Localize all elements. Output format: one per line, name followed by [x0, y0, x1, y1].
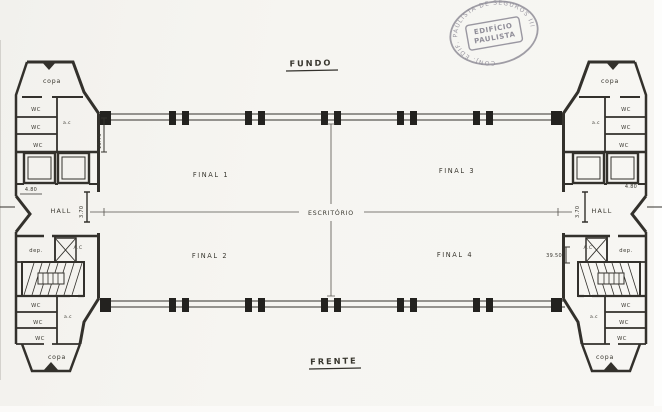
room-label-dep-left: dep.	[29, 248, 42, 254]
label-final-3: FINAL 3	[439, 167, 475, 175]
dim-elevator-left: 4.80	[25, 187, 37, 193]
dim-hall-left: 3.70	[79, 206, 85, 218]
room-label-wc: WC	[617, 336, 627, 342]
label-frente: FRENTE	[310, 355, 358, 366]
office-labels: FINAL 1 FINAL 3 FINAL 2 FINAL 4 ESCRITÓR…	[192, 167, 475, 260]
dimension-marks	[20, 118, 588, 263]
room-label-wc: WC	[621, 303, 631, 309]
room-label-hall-right: HALL	[591, 207, 612, 215]
label-final-4: FINAL 4	[437, 251, 473, 259]
left-wing-labels: copa WC WC WC a.c HALL dep. A.C WC WC WC…	[29, 78, 82, 361]
room-label-ac-shaft-right: A.C	[584, 245, 593, 251]
room-label-copa-bottom-left: copa	[48, 354, 66, 361]
right-wing-labels: copa WC WC WC a.c HALL dep. A.C WC WC WC…	[584, 78, 633, 361]
room-label-ac: a.c	[590, 315, 598, 320]
room-label-wc: WC	[621, 125, 631, 131]
room-label-wc: WC	[33, 143, 43, 149]
room-label-copa-bottom-right: copa	[596, 354, 614, 361]
dim-hall-right: 3.70	[575, 206, 581, 218]
room-label-copa-top-left: copa	[43, 78, 61, 85]
room-label-wc: WC	[31, 303, 41, 309]
label-fundo: FUNDO	[289, 57, 332, 68]
room-label-copa-top-right: copa	[601, 78, 619, 85]
room-label-wc: WC	[31, 125, 41, 131]
room-label-ac-shaft-left: A.C	[74, 245, 83, 251]
room-label-wc: WC	[621, 107, 631, 113]
scanned-floor-plan: 15.75 4.80 3.70 4.80 3.70 39.50 copa WC …	[0, 0, 662, 412]
dim-bay-height: 15.75	[97, 133, 103, 149]
room-label-ac: a.c	[63, 121, 71, 126]
dim-elevator-right: 4.80	[625, 184, 637, 190]
room-label-wc: WC	[619, 143, 629, 149]
room-label-wc: WC	[33, 320, 43, 326]
label-final-2: FINAL 2	[192, 252, 228, 260]
room-label-hall-left: HALL	[50, 207, 71, 215]
room-label-dep-right: dep.	[619, 248, 632, 254]
room-label-ac: a.c	[64, 315, 72, 320]
room-label-wc: WC	[31, 107, 41, 113]
label-escritorio: ESCRITÓRIO	[308, 208, 354, 217]
label-final-1: FINAL 1	[193, 171, 229, 179]
floor-plan-drawing: 15.75 4.80 3.70 4.80 3.70 39.50 copa WC …	[0, 0, 662, 412]
room-label-wc: WC	[619, 320, 629, 326]
dim-total-right: 39.50	[546, 253, 562, 259]
room-label-ac: a.c	[592, 121, 600, 126]
room-label-wc: WC	[35, 336, 45, 342]
rubber-stamp: EDIFÍCIO PAULISTA CONJ. EDIF. PAULISTA D…	[445, 0, 543, 73]
